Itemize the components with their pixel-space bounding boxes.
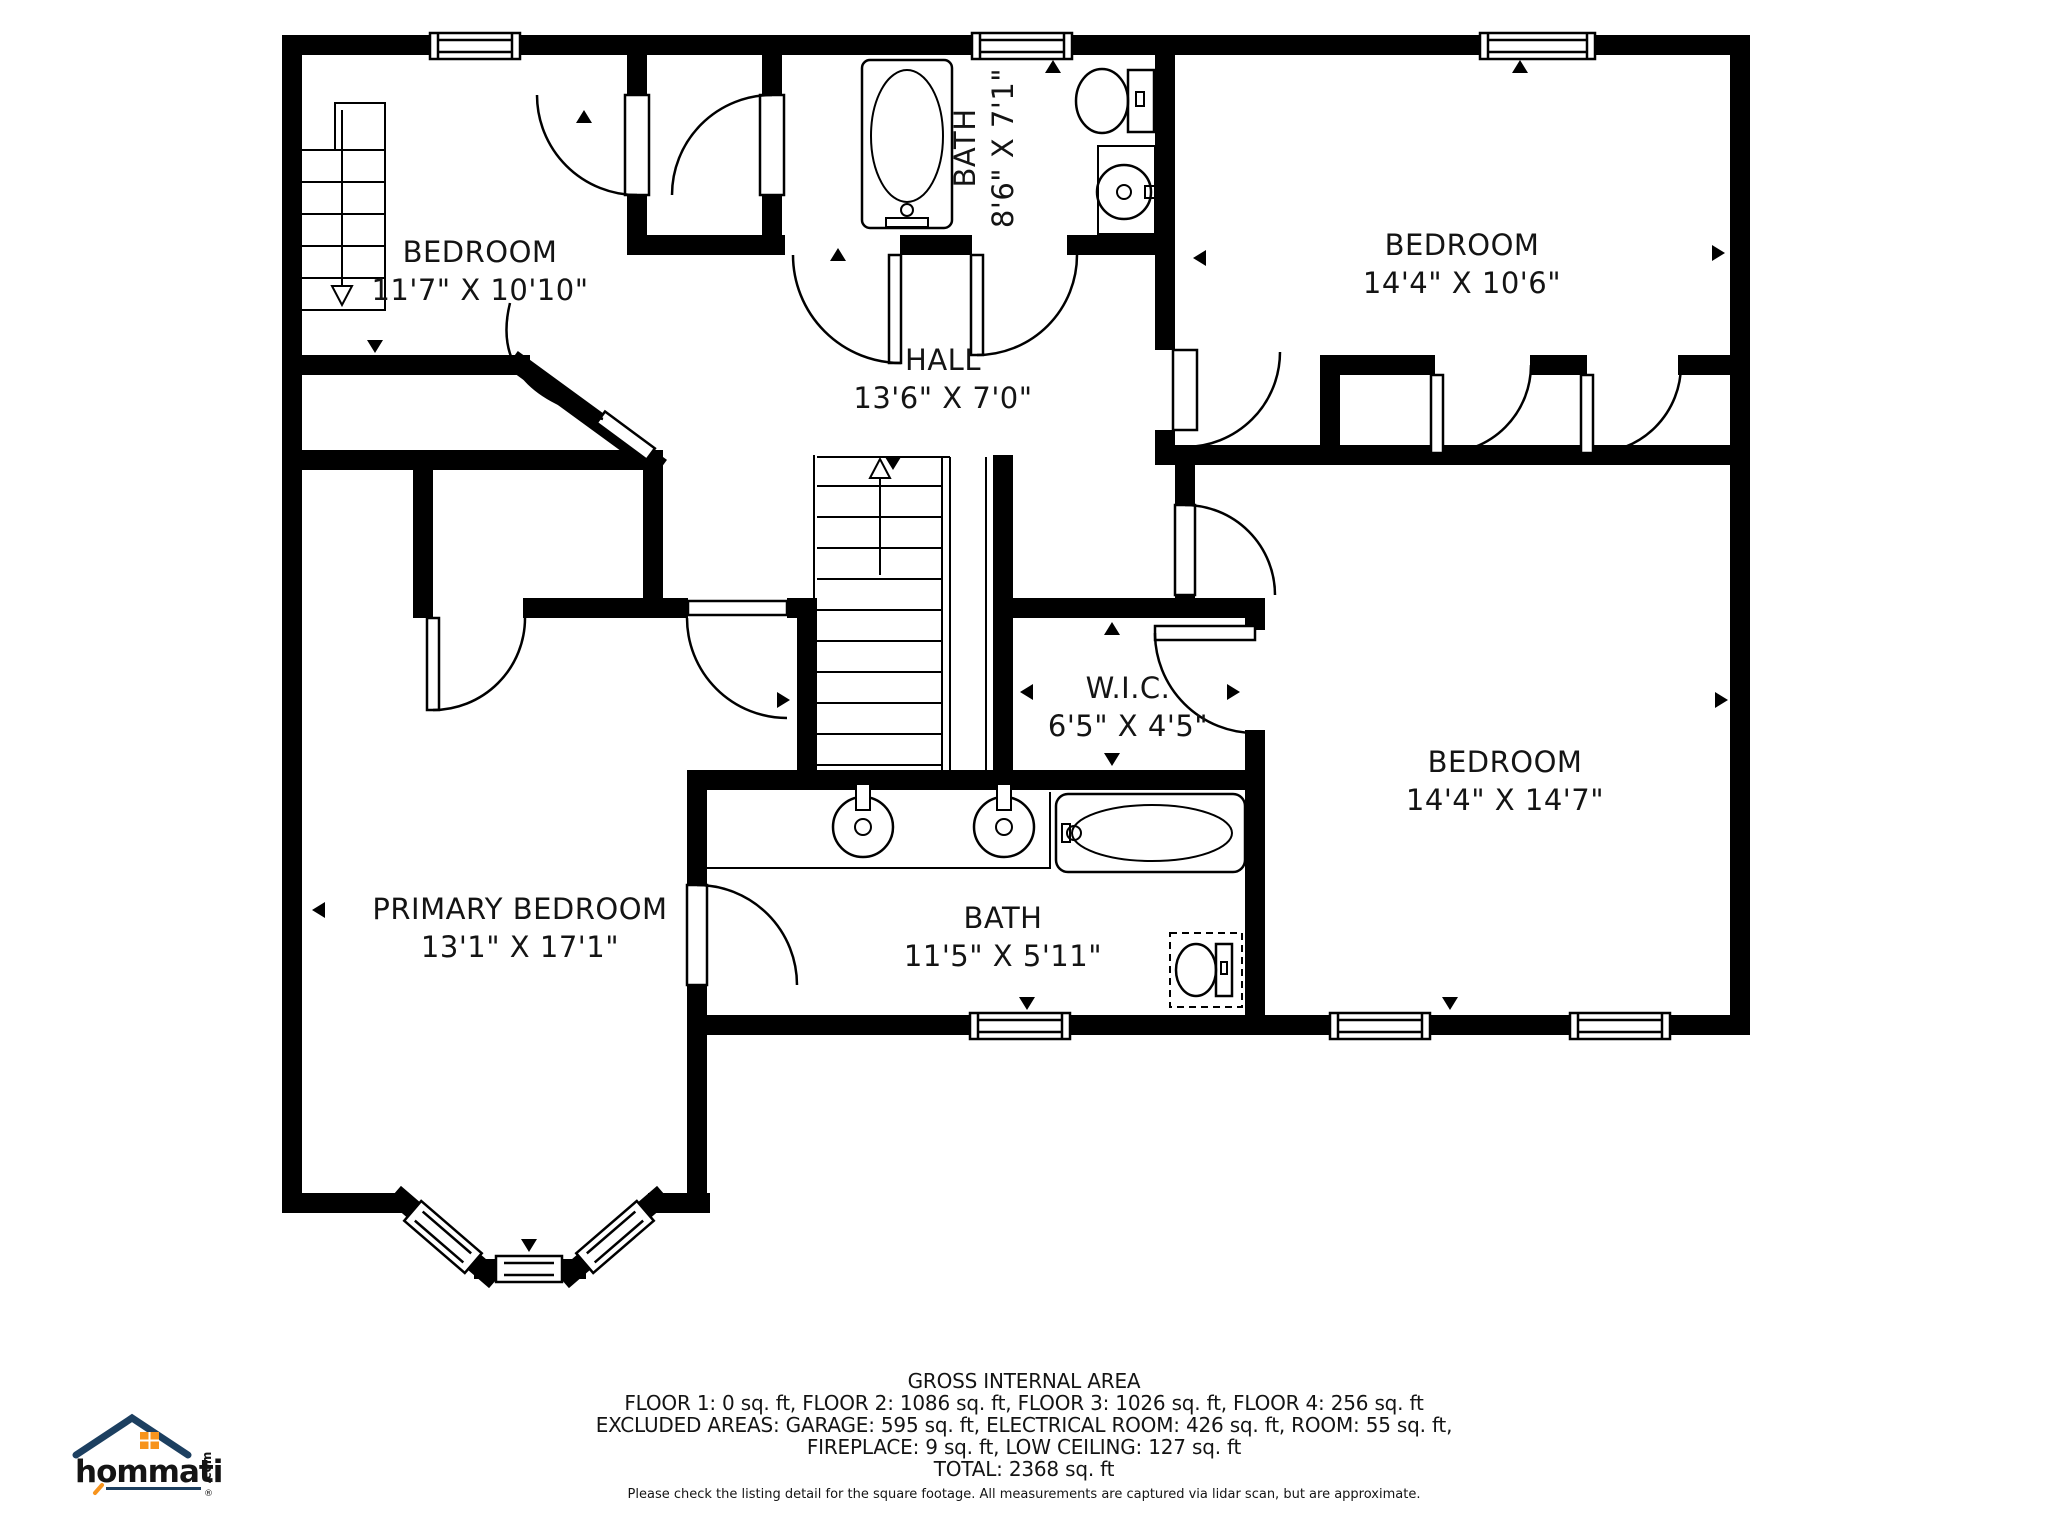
door-bath-top [971, 255, 1077, 355]
svg-text:BEDROOM: BEDROOM [403, 235, 558, 269]
hommati-logo-graphic: hommati .com ® [70, 1408, 230, 1500]
door-bedroom-top-right-entry [1173, 350, 1280, 447]
toilet [1170, 933, 1242, 1007]
logo-tld-text: .com [200, 1452, 214, 1484]
label-hall: HALL 13'6" X 7'0" [853, 343, 1032, 415]
door-hall-left [793, 255, 901, 363]
svg-text:BEDROOM: BEDROOM [1428, 745, 1583, 779]
bath-bottom-fixtures [707, 784, 1245, 1007]
logo-underline [106, 1487, 201, 1490]
window-bedroom-right-2 [1570, 1013, 1670, 1039]
label-wic: W.I.C. 6'5" X 4'5" [1048, 671, 1208, 743]
floor-areas-line: FLOOR 1: 0 sq. ft, FLOOR 2: 1086 sq. ft,… [0, 1392, 2048, 1414]
door-closet-tr-2 [1581, 365, 1681, 453]
label-primary-bedroom: PRIMARY BEDROOM 13'1" X 17'1" [372, 892, 667, 964]
sink-left [833, 784, 893, 857]
door-closet-top [672, 95, 784, 195]
svg-text:13'6" X 7'0": 13'6" X 7'0" [853, 381, 1032, 415]
bathtub [1056, 794, 1245, 872]
logo-window-icon [140, 1432, 159, 1449]
svg-text:14'4" X 10'6": 14'4" X 10'6" [1363, 266, 1561, 300]
label-bedroom-top-left: BEDROOM 11'7" X 10'10" [371, 235, 588, 307]
label-bedroom-right: BEDROOM 14'4" X 14'7" [1406, 745, 1604, 817]
door-closet-tr-1 [1431, 365, 1531, 453]
staircase-main [814, 455, 986, 790]
total-area-line: TOTAL: 2368 sq. ft [0, 1458, 2048, 1480]
logo-roof-icon [76, 1418, 188, 1455]
svg-text:13'1" X 17'1": 13'1" X 17'1" [421, 930, 619, 964]
logo-registered-mark: ® [204, 1489, 213, 1499]
svg-text:6'5" X 4'5": 6'5" X 4'5" [1048, 709, 1208, 743]
window-bedroom-top-right [1480, 33, 1595, 59]
excluded-areas-line-2: FIREPLACE: 9 sq. ft, LOW CEILING: 127 sq… [0, 1436, 2048, 1458]
window-bath-bottom [970, 1013, 1070, 1039]
svg-text:HALL: HALL [905, 343, 981, 377]
footer-area-summary: GROSS INTERNAL AREA FLOOR 1: 0 sq. ft, F… [0, 1370, 2048, 1503]
bay-window-center [496, 1256, 562, 1282]
sink-right [974, 784, 1034, 857]
bay-window-right [576, 1201, 654, 1273]
svg-text:BEDROOM: BEDROOM [1385, 228, 1540, 262]
svg-text:14'4" X 14'7": 14'4" X 14'7" [1406, 783, 1604, 817]
window-bedroom-right-1 [1330, 1013, 1430, 1039]
door-bedroom-right-entry [1175, 505, 1275, 595]
door-bath-bottom [687, 885, 797, 985]
svg-text:11'5" X 5'11": 11'5" X 5'11" [904, 939, 1102, 973]
door-primary-closet [427, 618, 525, 710]
windows [404, 33, 1670, 1282]
disclaimer-text: Please check the listing detail for the … [0, 1487, 2048, 1503]
svg-text:PRIMARY BEDROOM: PRIMARY BEDROOM [372, 892, 667, 926]
label-bath-top: BATH 8'6" X 7'1" [948, 68, 1020, 228]
floor-plan: BEDROOM 11'7" X 10'10" BATH 8'6" X 7'1" … [0, 0, 2048, 1536]
bathtub [862, 60, 952, 228]
sink [1097, 146, 1163, 234]
window-bedroom-top-left [430, 33, 520, 59]
bay-window-left [404, 1201, 482, 1273]
svg-text:W.I.C.: W.I.C. [1086, 671, 1171, 705]
excluded-areas-line: EXCLUDED AREAS: GARAGE: 595 sq. ft, ELEC… [0, 1414, 2048, 1436]
gross-internal-area-title: GROSS INTERNAL AREA [0, 1370, 2048, 1392]
label-bedroom-top-right: BEDROOM 14'4" X 10'6" [1363, 228, 1561, 300]
svg-text:8'6" X 7'1": 8'6" X 7'1" [986, 68, 1020, 228]
svg-text:BATH: BATH [963, 901, 1042, 935]
toilet [1076, 69, 1154, 133]
label-bath-bottom: BATH 11'5" X 5'11" [904, 901, 1102, 973]
door-primary-entry [687, 601, 787, 718]
hommati-logo: hommati .com ® [70, 1408, 230, 1504]
window-bath-top [972, 33, 1072, 59]
svg-text:BATH: BATH [948, 108, 982, 187]
door-bedroom-top-left [537, 95, 649, 195]
svg-text:11'7" X 10'10": 11'7" X 10'10" [371, 273, 588, 307]
